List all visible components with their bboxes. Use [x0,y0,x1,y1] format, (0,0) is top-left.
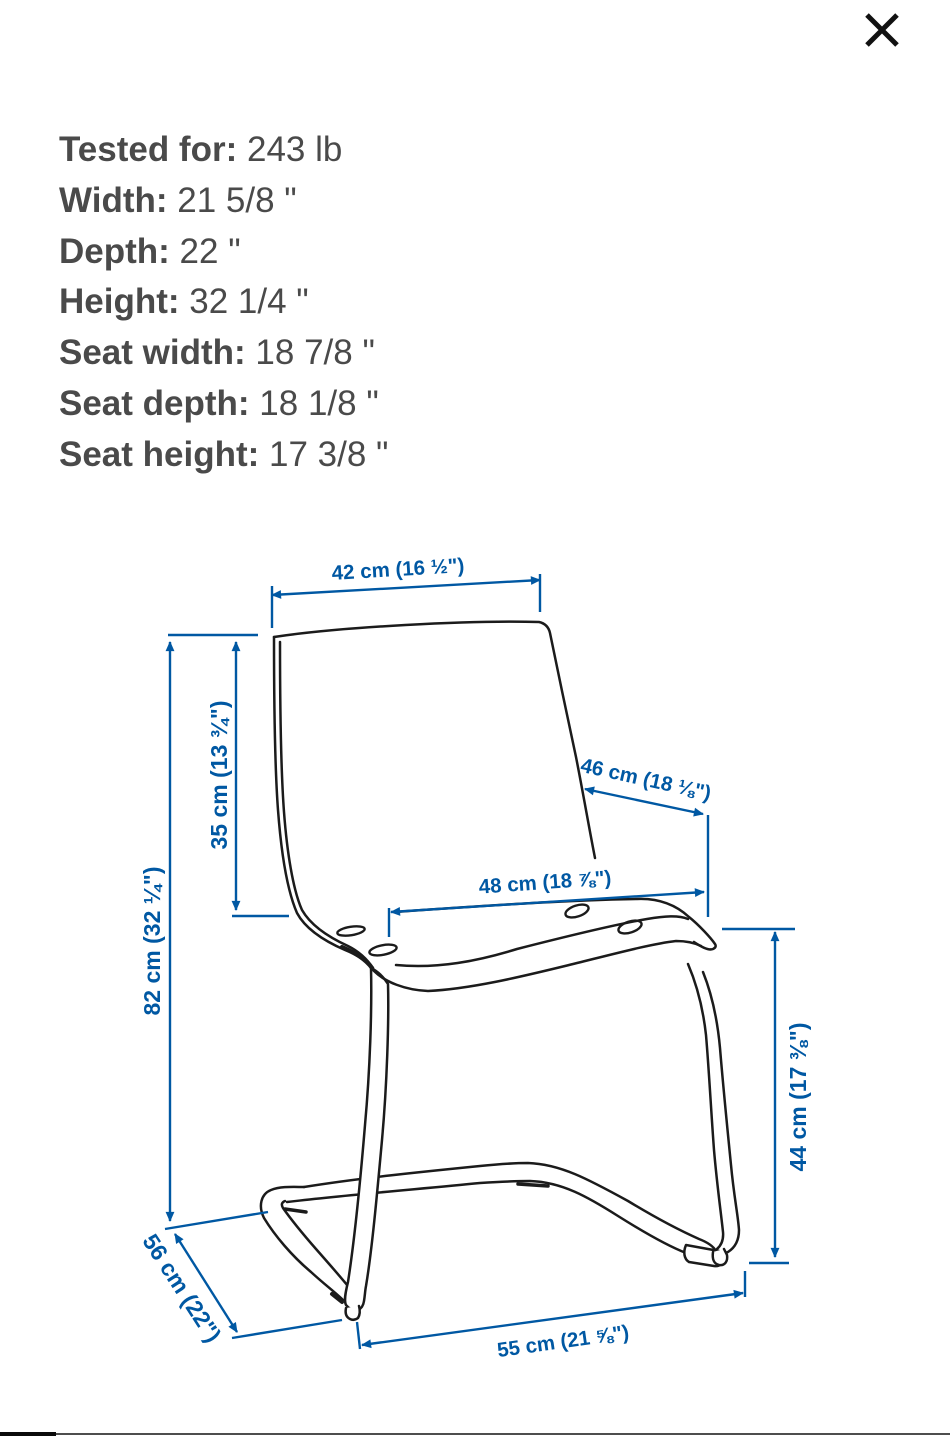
svg-text:55 cm (21 ⅝"): 55 cm (21 ⅝") [496,1321,631,1362]
svg-text:46 cm (18 ⅛"): 46 cm (18 ⅛") [579,754,714,805]
svg-text:48 cm (18 ⅞"): 48 cm (18 ⅞") [478,866,612,898]
svg-text:35 cm (13 ¾"): 35 cm (13 ¾") [206,701,232,850]
svg-text:82 cm (32 ¼"): 82 cm (32 ¼") [139,867,165,1016]
svg-text:44 cm (17 ⅜"): 44 cm (17 ⅜") [785,1023,811,1172]
svg-text:42 cm (16 ½"): 42 cm (16 ½") [331,554,465,585]
